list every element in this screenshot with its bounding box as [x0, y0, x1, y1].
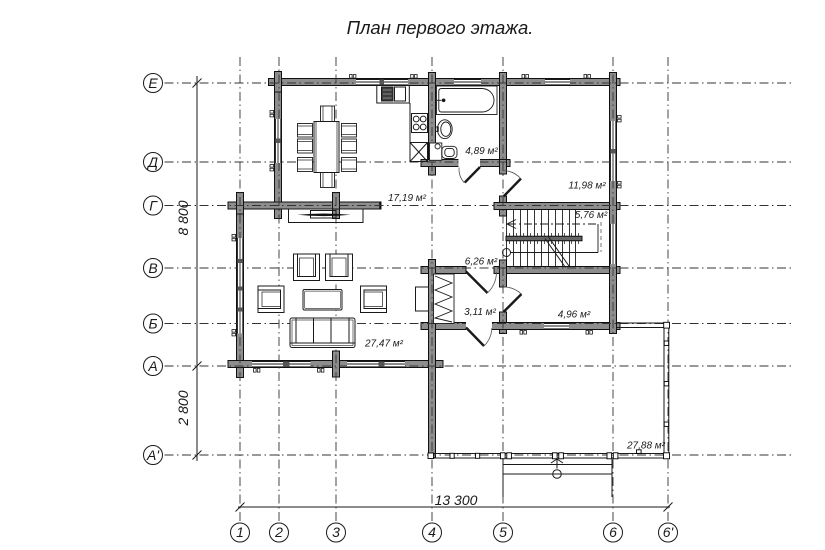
svg-text:3,11 м²: 3,11 м²: [464, 307, 496, 318]
svg-text:8 800: 8 800: [175, 200, 191, 235]
svg-text:13 300: 13 300: [435, 492, 478, 508]
svg-text:Е: Е: [148, 75, 158, 91]
svg-text:17,19 м²: 17,19 м²: [388, 193, 427, 204]
svg-text:А': А': [146, 447, 160, 463]
svg-text:Д: Д: [146, 154, 158, 170]
svg-text:Б: Б: [148, 316, 157, 332]
svg-text:27,88 м²: 27,88 м²: [626, 441, 666, 452]
svg-text:6,26 м²: 6,26 м²: [465, 257, 498, 268]
svg-text:5,76 м²: 5,76 м²: [575, 210, 608, 221]
svg-text:4: 4: [428, 524, 436, 540]
svg-text:4,89 м²: 4,89 м²: [465, 146, 498, 157]
svg-text:В: В: [148, 260, 157, 276]
svg-text:1: 1: [236, 524, 244, 540]
svg-text:А: А: [147, 358, 157, 374]
svg-text:5: 5: [499, 524, 507, 540]
svg-text:2: 2: [274, 524, 283, 540]
svg-text:2 800: 2 800: [175, 390, 191, 426]
svg-text:6': 6': [663, 524, 675, 540]
svg-text:4,96 м²: 4,96 м²: [558, 310, 591, 321]
svg-text:План первого этажа.: План первого этажа.: [347, 17, 534, 38]
svg-text:27,47 м²: 27,47 м²: [364, 339, 404, 350]
svg-text:11,98 м²: 11,98 м²: [568, 181, 606, 192]
svg-text:3: 3: [332, 524, 340, 540]
svg-text:6: 6: [609, 524, 617, 540]
